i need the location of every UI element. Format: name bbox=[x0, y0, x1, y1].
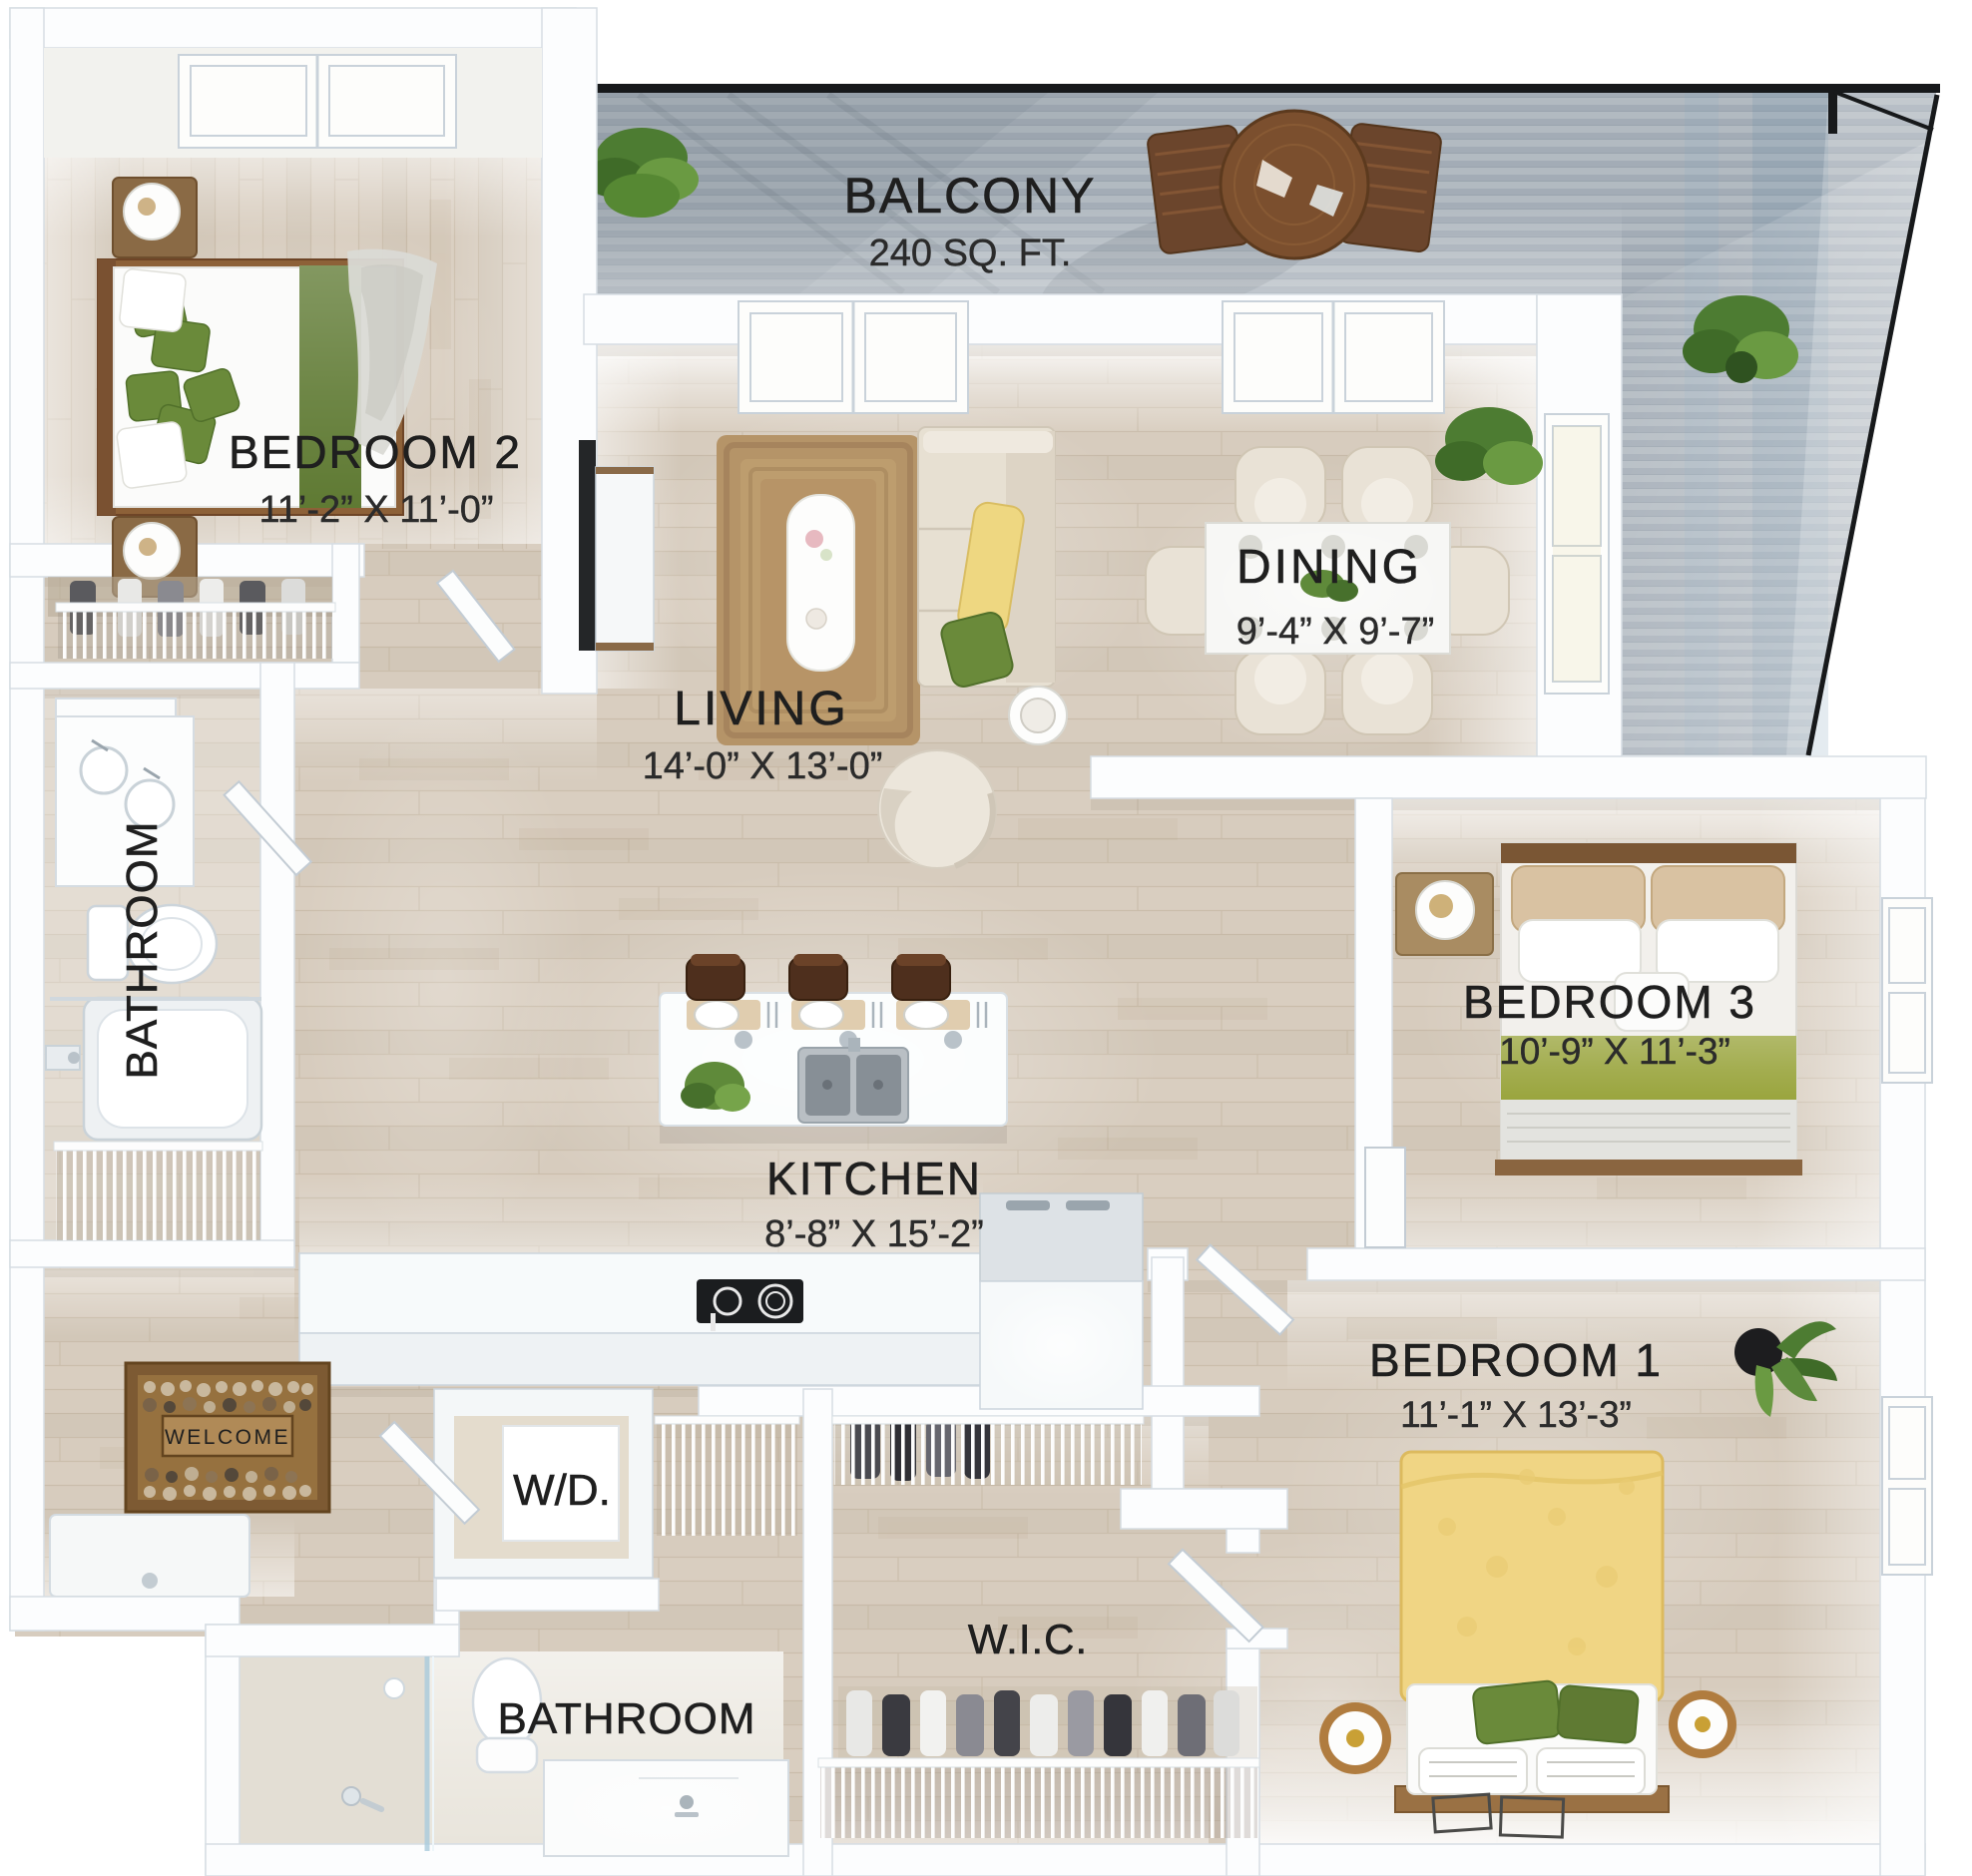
svg-text:BALCONY: BALCONY bbox=[844, 168, 1097, 224]
svg-text:8’-8” X 15’-2”: 8’-8” X 15’-2” bbox=[764, 1213, 984, 1255]
svg-text:11’-2” X 11’-0”: 11’-2” X 11’-0” bbox=[258, 489, 493, 531]
svg-text:WELCOME: WELCOME bbox=[165, 1426, 290, 1449]
svg-text:KITCHEN: KITCHEN bbox=[766, 1153, 982, 1204]
svg-text:240 SQ. FT.: 240 SQ. FT. bbox=[869, 233, 1072, 274]
svg-text:BEDROOM 3: BEDROOM 3 bbox=[1463, 976, 1756, 1028]
svg-text:14’-0” X 13’-0”: 14’-0” X 13’-0” bbox=[643, 745, 883, 787]
svg-text:BATHROOM: BATHROOM bbox=[118, 821, 167, 1080]
svg-text:W/D.: W/D. bbox=[513, 1466, 611, 1515]
svg-text:LIVING: LIVING bbox=[674, 683, 848, 735]
svg-text:BEDROOM 2: BEDROOM 2 bbox=[229, 426, 522, 478]
svg-text:11’-1” X 13’-3”: 11’-1” X 13’-3” bbox=[1400, 1394, 1632, 1435]
svg-text:BATHROOM: BATHROOM bbox=[498, 1694, 756, 1743]
svg-text:10’-9” X 11’-3”: 10’-9” X 11’-3” bbox=[1499, 1031, 1730, 1072]
svg-text:9’-4” X 9’-7”: 9’-4” X 9’-7” bbox=[1236, 611, 1435, 653]
svg-text:DINING: DINING bbox=[1236, 541, 1422, 594]
svg-text:W.I.C.: W.I.C. bbox=[968, 1616, 1088, 1662]
svg-text:BEDROOM 1: BEDROOM 1 bbox=[1369, 1334, 1663, 1386]
